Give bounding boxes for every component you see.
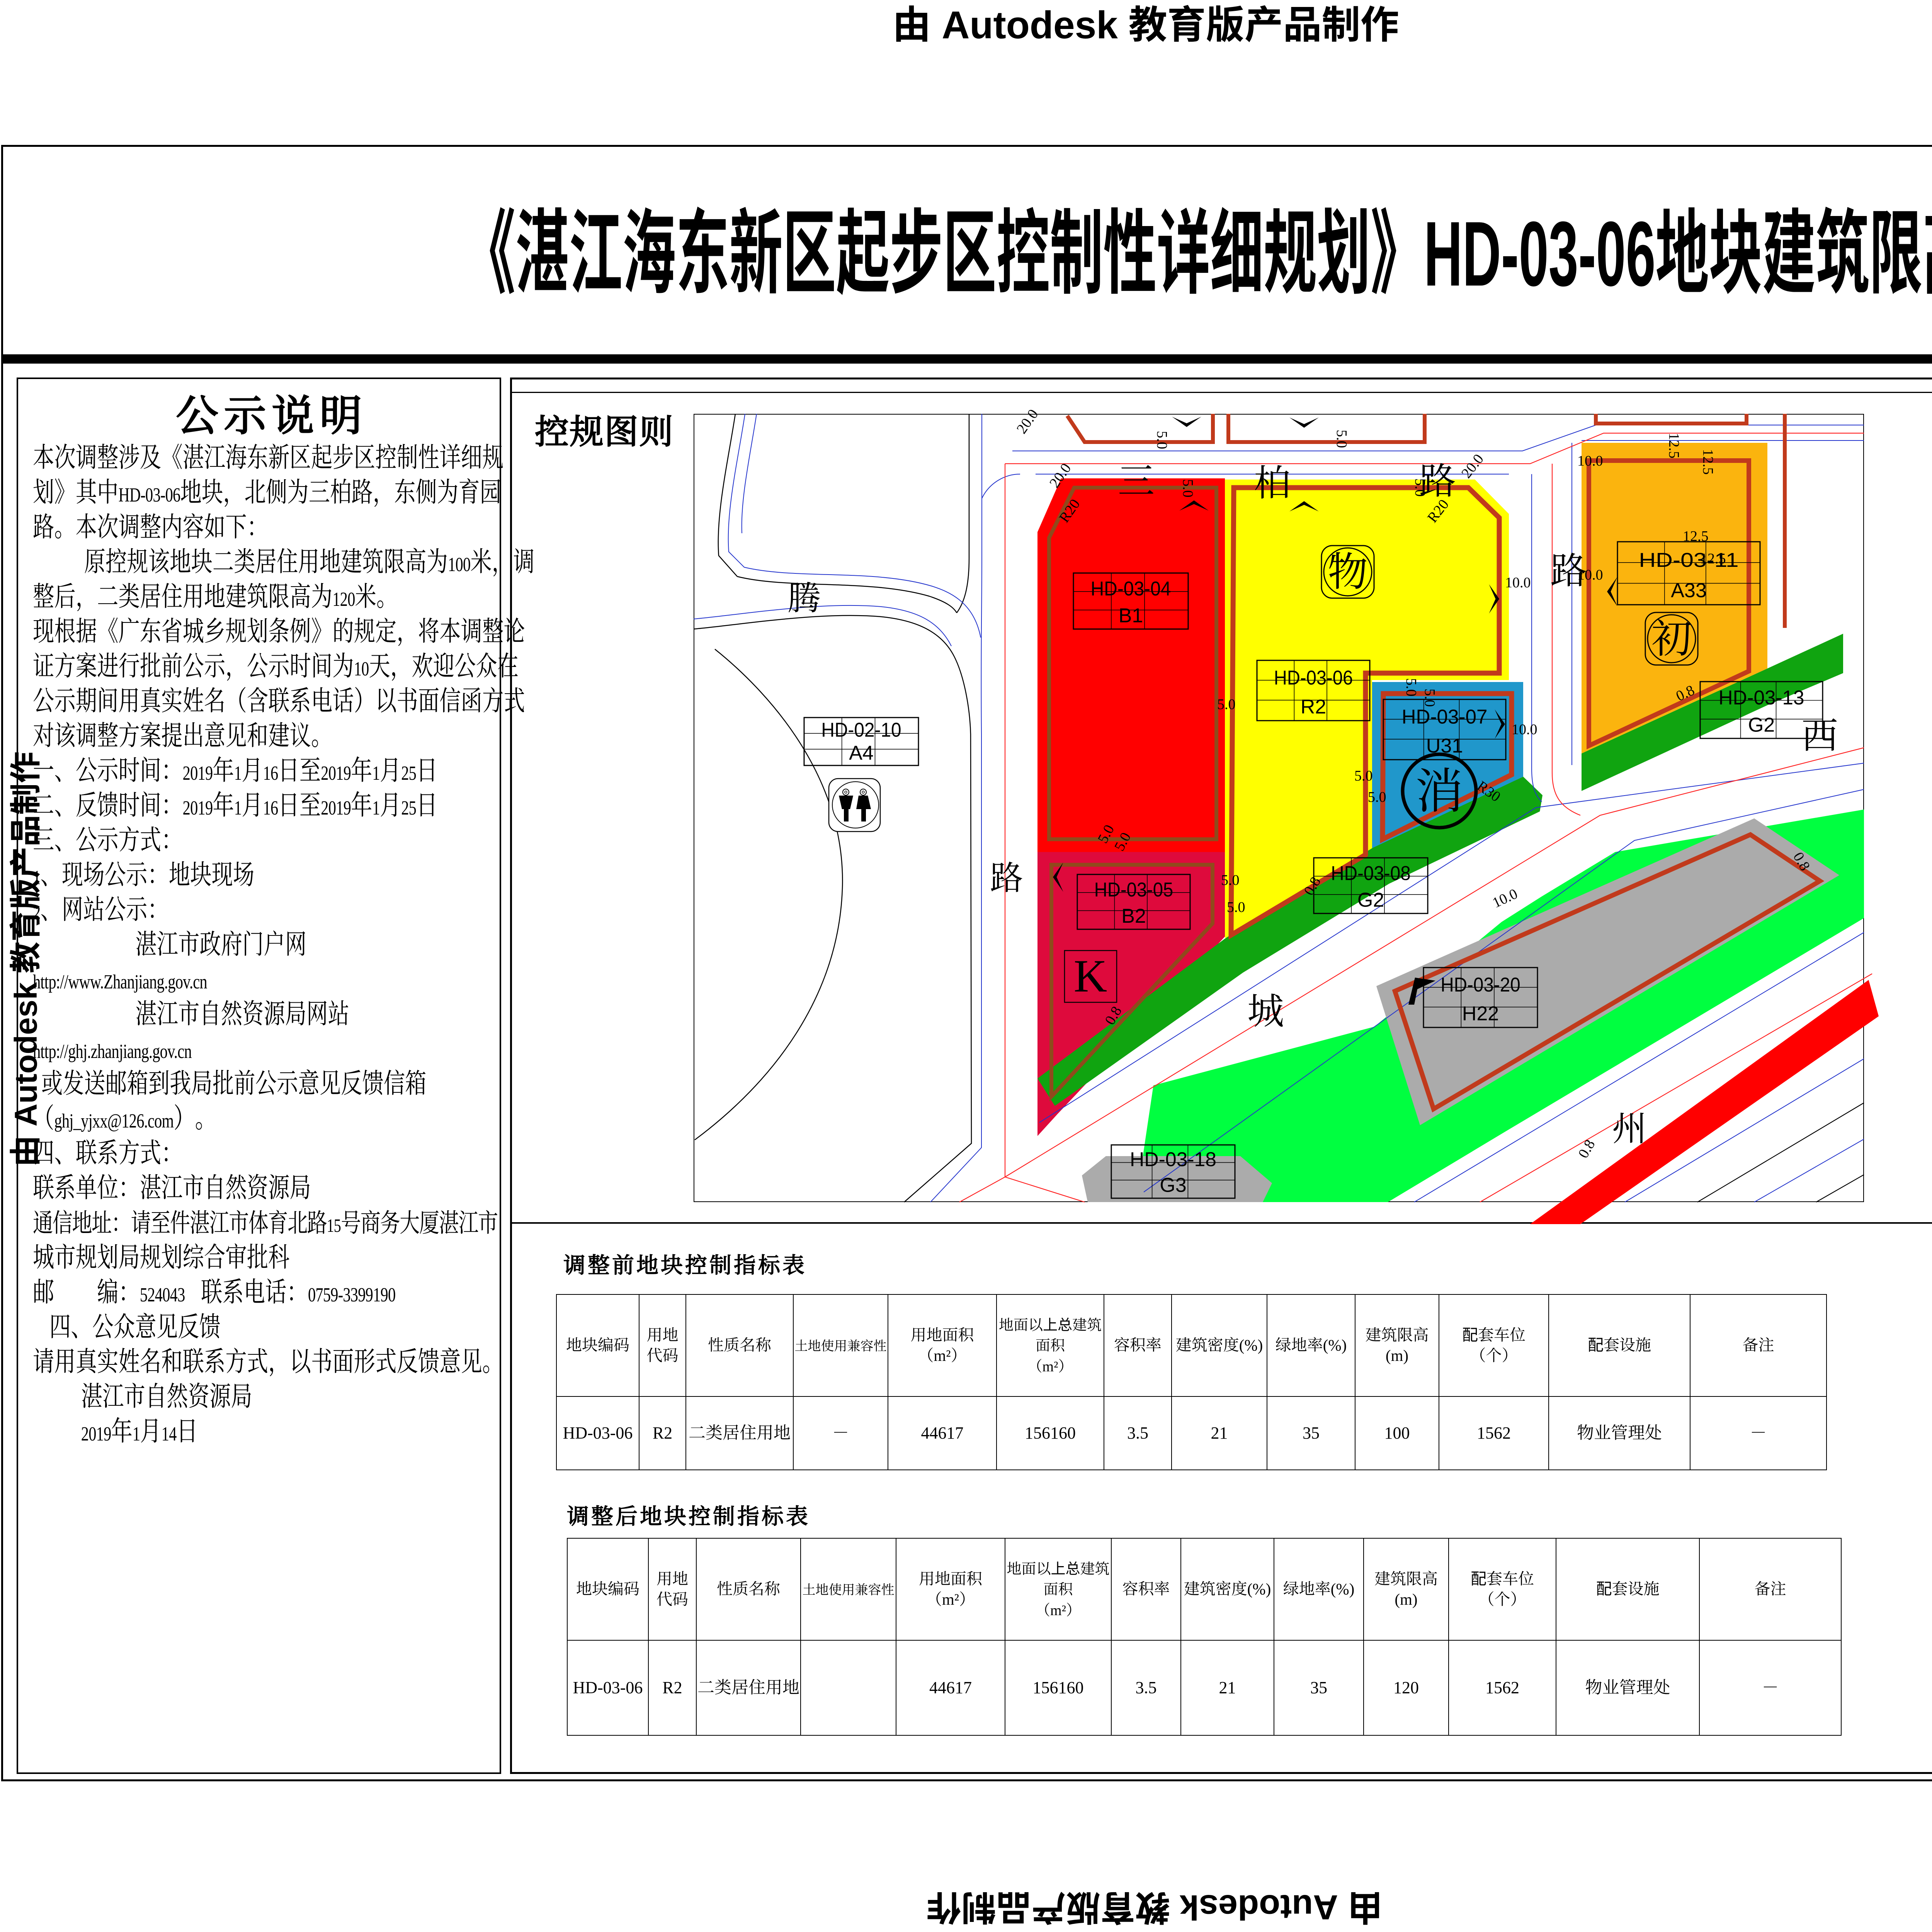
svg-text:HD-03-07: HD-03-07 [1402, 706, 1488, 728]
svg-text:物: 物 [1328, 550, 1368, 595]
svg-text:5.0: 5.0 [1333, 430, 1350, 448]
svg-text:腾: 腾 [787, 580, 821, 617]
svg-text:西: 西 [1801, 716, 1838, 757]
svg-text:5.0: 5.0 [1180, 479, 1196, 498]
svg-text:12.5: 12.5 [1700, 551, 1726, 567]
svg-text:HD-02-10: HD-02-10 [821, 719, 901, 742]
svg-text:B2: B2 [1121, 905, 1146, 927]
svg-text:A33: A33 [1671, 579, 1707, 602]
svg-text:A4: A4 [849, 742, 874, 764]
svg-text:5.0: 5.0 [1221, 872, 1240, 888]
svg-text:HD-03-13: HD-03-13 [1719, 687, 1804, 709]
svg-text:初: 初 [1651, 617, 1692, 662]
svg-text:B1: B1 [1119, 605, 1143, 627]
svg-text:10.0: 10.0 [1490, 886, 1520, 911]
svg-text:H22: H22 [1462, 1002, 1499, 1025]
svg-text:HD-03-08: HD-03-08 [1331, 862, 1411, 885]
svg-text:HD-03-05: HD-03-05 [1094, 879, 1173, 901]
svg-text:K: K [1074, 950, 1107, 1002]
svg-text:10.0: 10.0 [1577, 567, 1603, 583]
svg-text:10.0: 10.0 [1577, 453, 1603, 469]
svg-text:HD-03-18: HD-03-18 [1130, 1148, 1216, 1171]
svg-text:10.0: 10.0 [1512, 721, 1537, 738]
svg-text:州: 州 [1612, 1110, 1647, 1148]
svg-text:G3: G3 [1160, 1174, 1186, 1196]
svg-text:三: 三 [1118, 461, 1155, 502]
svg-text:G2: G2 [1748, 714, 1775, 736]
svg-text:柏: 柏 [1254, 463, 1291, 504]
svg-text:5.0: 5.0 [1422, 689, 1438, 707]
svg-text:城: 城 [1247, 991, 1284, 1032]
svg-text:消: 消 [1415, 765, 1464, 818]
svg-text:HD-03-04: HD-03-04 [1091, 578, 1171, 600]
svg-text:路: 路 [990, 860, 1023, 897]
svg-text:HD-03-06: HD-03-06 [1274, 667, 1353, 689]
svg-text:20.0: 20.0 [1458, 451, 1487, 481]
svg-text:G2: G2 [1357, 889, 1384, 912]
svg-text:10.0: 10.0 [1505, 575, 1531, 591]
svg-text:12.5: 12.5 [1700, 449, 1716, 475]
svg-text:12.5: 12.5 [1666, 433, 1682, 459]
svg-text:HD-03-20: HD-03-20 [1440, 974, 1520, 996]
svg-text:5.0: 5.0 [1154, 431, 1170, 449]
svg-text:5.0: 5.0 [1368, 789, 1386, 805]
svg-text:5.0: 5.0 [1227, 899, 1245, 915]
svg-text:5.0: 5.0 [1403, 678, 1419, 697]
svg-text:0.8: 0.8 [1575, 1137, 1598, 1161]
svg-text:12.5: 12.5 [1683, 528, 1709, 544]
svg-text:5.0: 5.0 [1354, 768, 1373, 784]
svg-text:R2: R2 [1301, 696, 1326, 718]
svg-text:5.0: 5.0 [1217, 696, 1236, 713]
svg-text:5.0: 5.0 [1412, 478, 1428, 497]
